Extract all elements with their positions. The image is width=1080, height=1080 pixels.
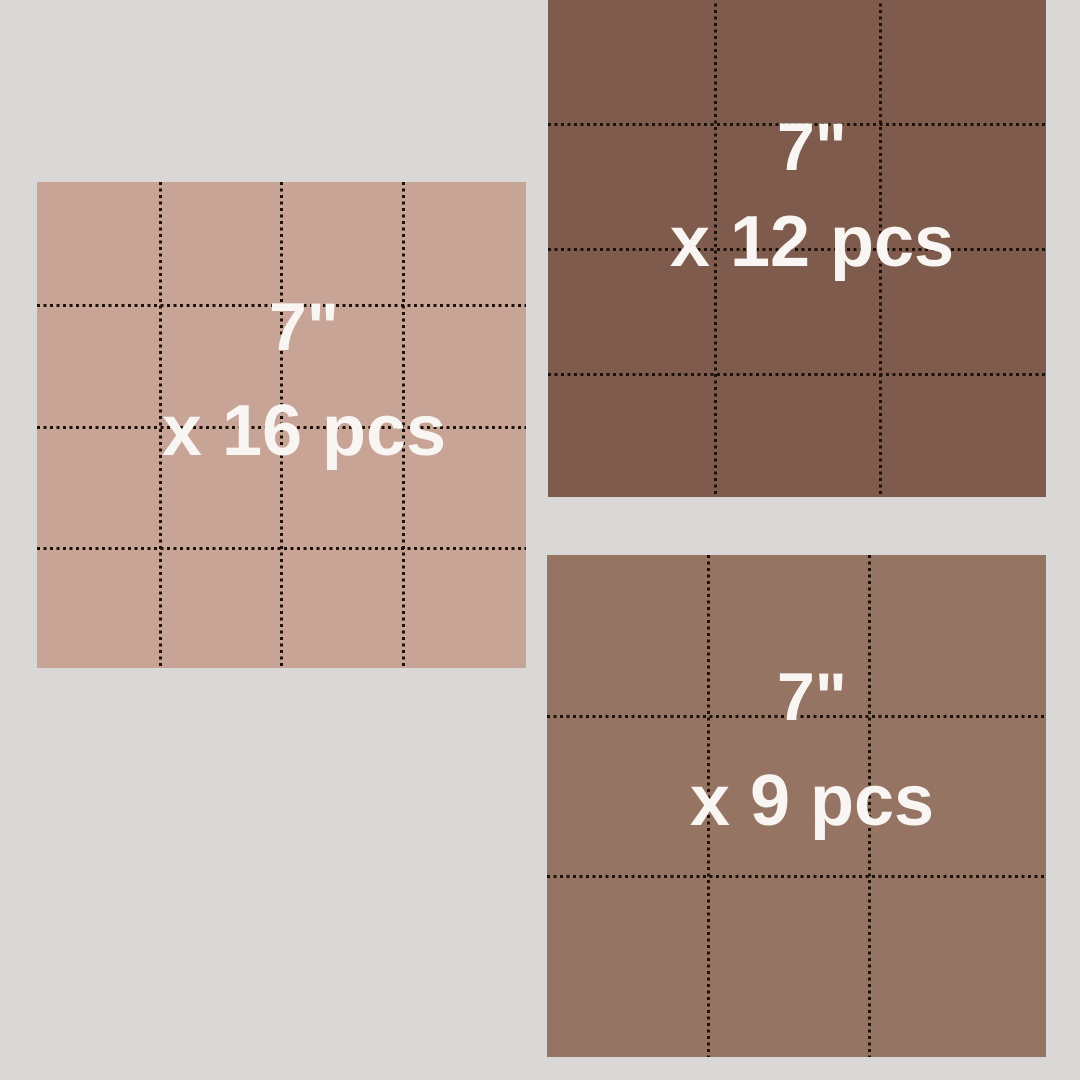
cut-line-horizontal: [547, 875, 1046, 878]
piece-count-label: x 12 pcs: [670, 206, 954, 278]
piece-count-label: x 9 pcs: [690, 765, 934, 837]
piece-size-label: 7": [777, 113, 847, 181]
piece-size-label: 7": [269, 293, 339, 361]
fabric-cutting-diagram: 7" x 16 pcs 7" x 12 pcs 7" x 9 pcs: [0, 0, 1080, 1080]
piece-count-label: x 16 pcs: [162, 395, 446, 467]
cut-line-horizontal: [548, 373, 1046, 376]
piece-size-label: 7": [777, 663, 847, 731]
